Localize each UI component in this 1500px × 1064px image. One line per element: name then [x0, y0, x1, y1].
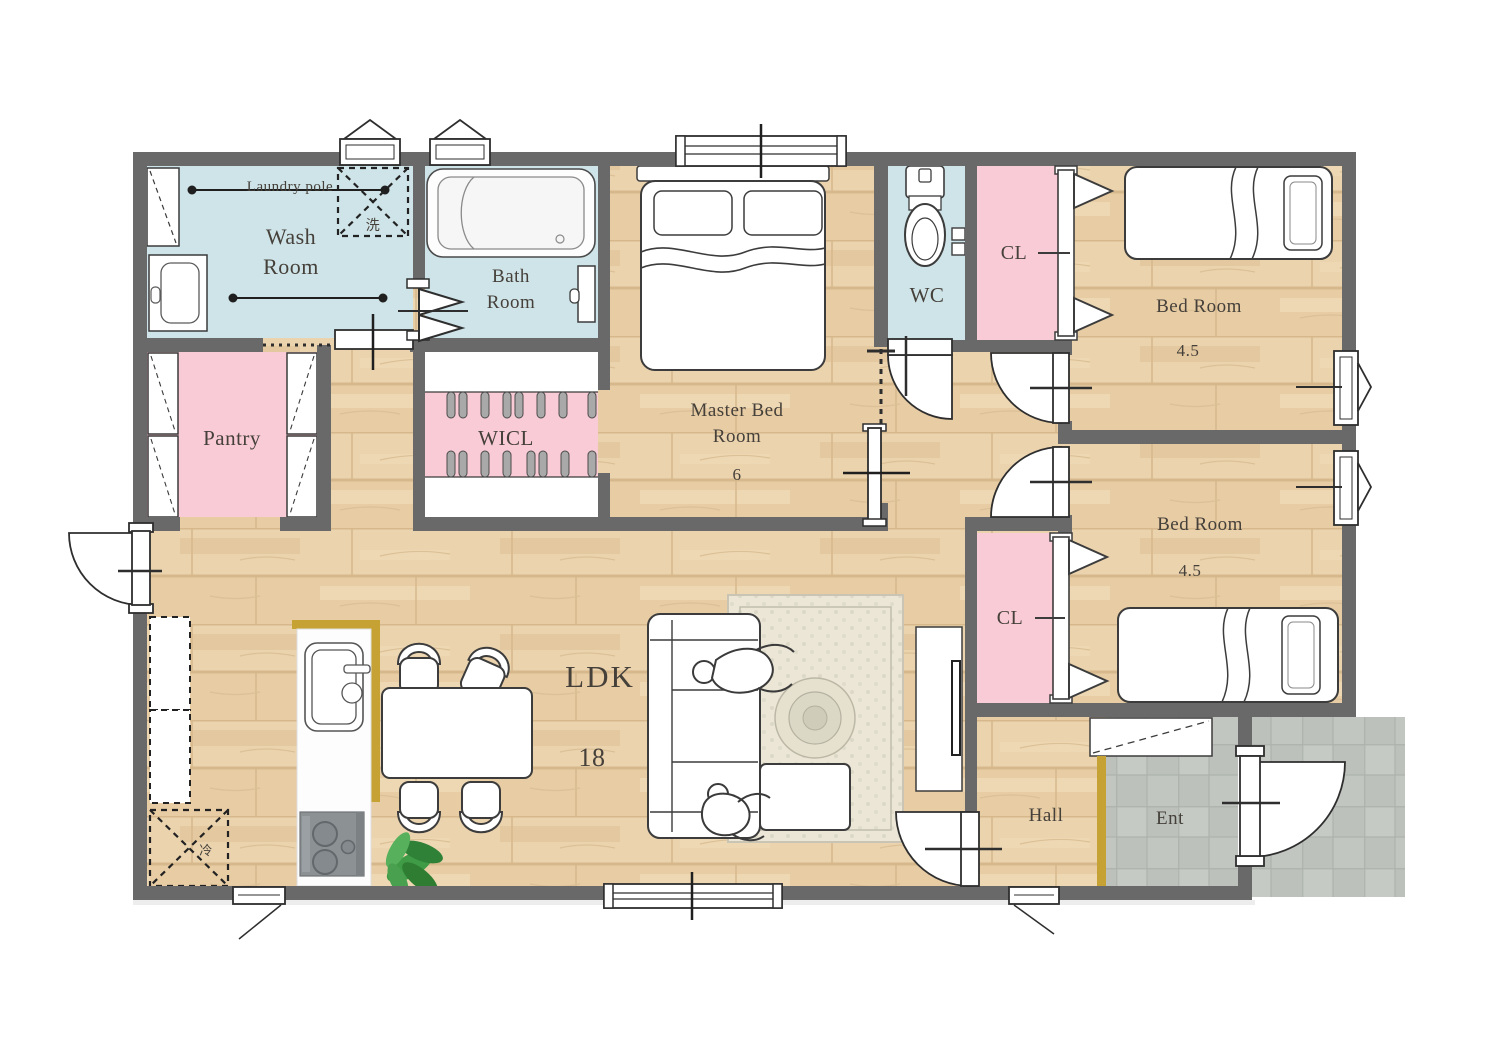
hall-window [1009, 887, 1059, 934]
entrance-step [1097, 756, 1106, 886]
washroom-cabinet [147, 168, 179, 246]
bathtub-icon [427, 169, 595, 257]
bedroom1-bed [1125, 167, 1332, 259]
kitchen-sink-icon [305, 643, 370, 731]
bathroom-window [430, 120, 490, 165]
label-master-bedroom-size: 6 [717, 464, 757, 487]
floor-plan: Laundry pole Wash Room 洗 Bath Room Pantr… [0, 0, 1500, 1064]
chair [460, 782, 502, 832]
label-wc: WC [887, 281, 967, 309]
label-bedroom-1-size: 4.5 [1158, 340, 1218, 363]
label-wash-room: Wash Room [251, 222, 331, 281]
washroom-window [340, 120, 400, 165]
label-bedroom-1: Bed Room [1139, 294, 1259, 320]
floor-plan-graphics [0, 0, 1500, 1064]
label-bedroom-2: Bed Room [1140, 512, 1260, 538]
chair [398, 644, 440, 694]
master-bed [637, 166, 829, 370]
bedroom2-bed [1118, 608, 1338, 702]
label-hall: Hall [996, 803, 1096, 829]
label-ldk: LDK [530, 656, 670, 698]
washbasin [149, 255, 207, 331]
label-bath-room: Bath Room [471, 264, 551, 315]
label-washing-machine: 洗 [358, 218, 388, 237]
label-ldk-size: 18 [552, 740, 632, 775]
chair [398, 782, 440, 832]
label-closet-2: CL [980, 605, 1040, 632]
tv-board [916, 627, 962, 791]
stove-icon [300, 812, 364, 876]
dining-table [382, 688, 532, 778]
kitchen-storage-cabinets [150, 617, 190, 803]
label-master-bedroom: Master Bed Room [672, 398, 802, 449]
label-laundry-pole: Laundry pole [210, 177, 370, 197]
label-entrance: Ent [1130, 806, 1210, 832]
label-closet-1: CL [984, 240, 1044, 267]
exterior-door-left [69, 523, 162, 613]
label-pantry: Pantry [172, 424, 292, 452]
kitchen-window [233, 887, 285, 939]
label-wicl: WICL [446, 424, 566, 452]
label-bedroom-2-size: 4.5 [1160, 560, 1220, 583]
label-refrigerator: 冷 [194, 842, 218, 860]
shoe-cabinet [1090, 718, 1212, 756]
